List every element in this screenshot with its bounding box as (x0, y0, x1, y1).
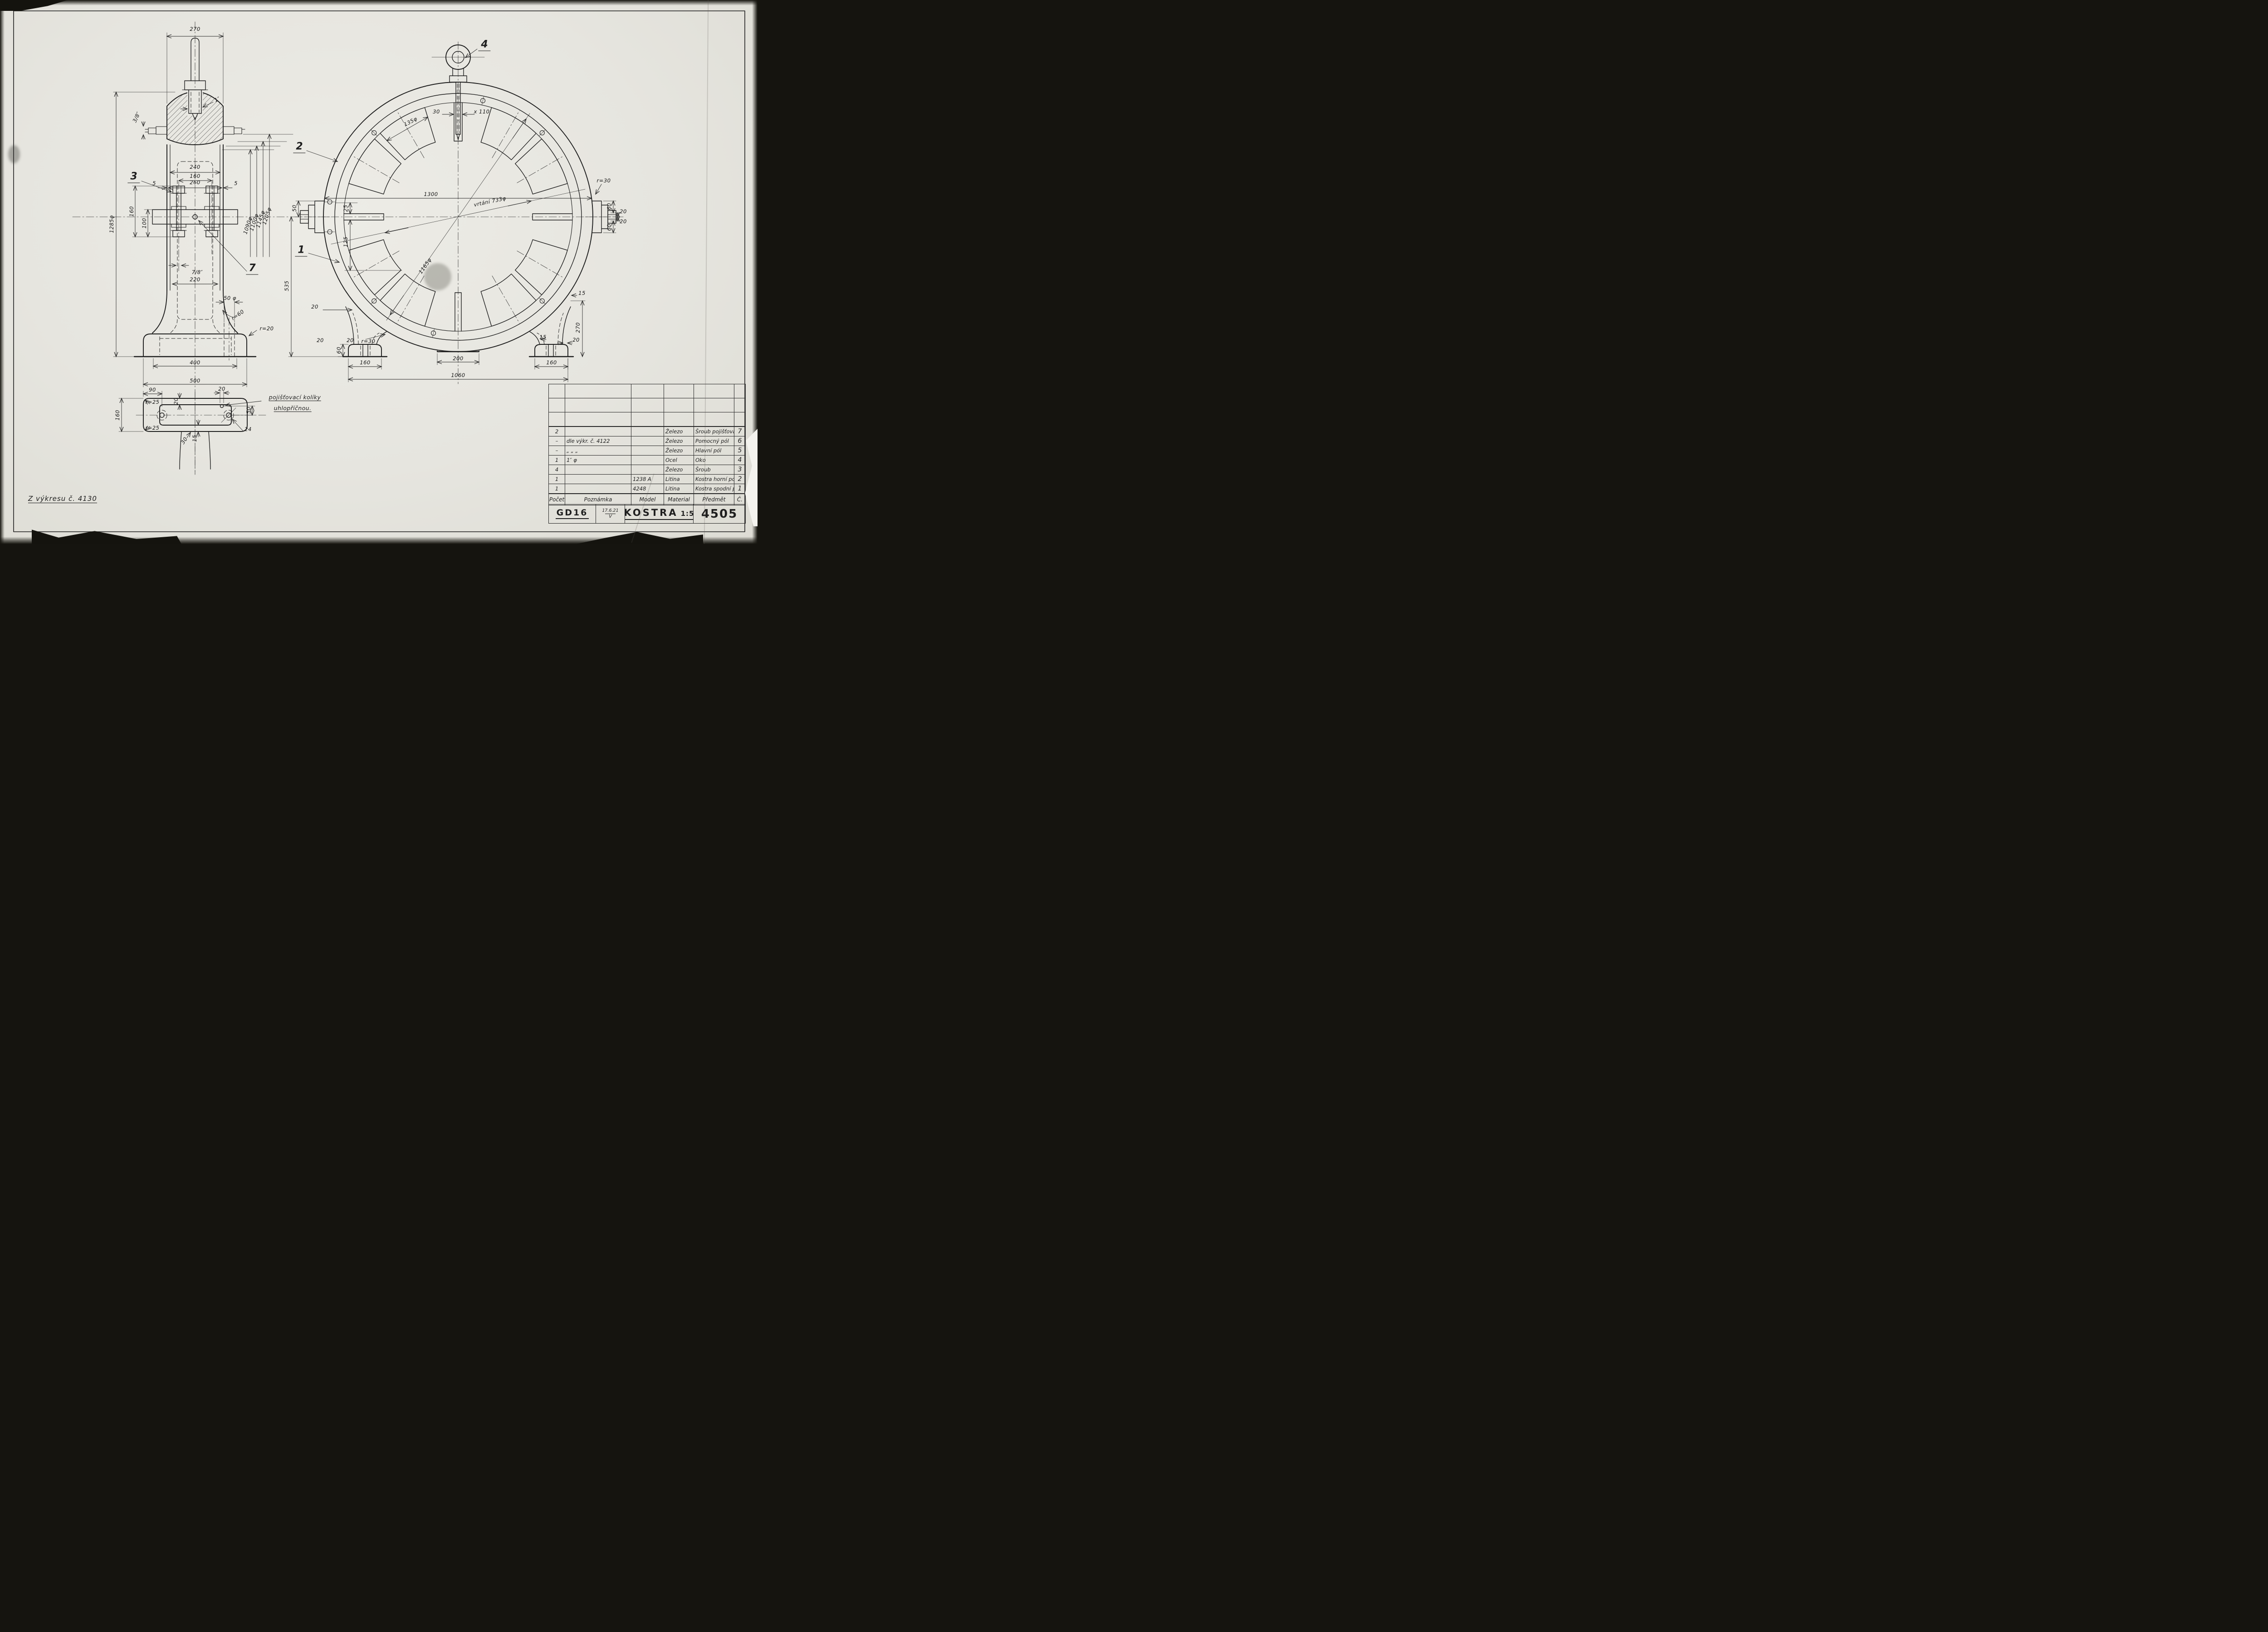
drawing-title: KOSTRA1:5 (625, 508, 694, 520)
dim-front-leftfoot-20c: 20 (347, 337, 354, 343)
lug-right (585, 201, 621, 233)
lug-left (295, 201, 332, 233)
dim-front-leftfoot-width: 160 (360, 359, 370, 366)
dim-front-rightlug-60b: 60 (606, 224, 612, 231)
side-view (113, 22, 293, 474)
table-row: 11″ φOcelOko4 (549, 456, 745, 465)
dim-front-leftfoot-60: 60 (336, 347, 342, 354)
dim-plan-pin-y: 50 (245, 407, 252, 414)
dim-front-lug-height: 50 (291, 205, 298, 212)
dim-side-overall-dia: 1285φ (108, 215, 115, 233)
dim-plan-pin-offset: 20 (218, 386, 225, 392)
dim-front-rightfoot-height: 270 (575, 322, 581, 333)
flange-bolt-left (171, 181, 186, 272)
flange-bolt-right (204, 181, 220, 254)
pin-note-line2: uhlopříčnou. (274, 405, 312, 412)
dim-front-rightlug-60a: 60 (606, 203, 612, 210)
dim-front-flat: 200 (453, 355, 463, 362)
drawing-sheet: 270 3/8″ 240 260 5 5 1″ 160 160 100 1285… (0, 0, 758, 544)
dim-front-rightlug-20b: 20 (620, 218, 627, 225)
dim-plan-hole-dia: 24 (244, 426, 252, 432)
dim-side-wall-right: 5 (234, 180, 238, 186)
dim-front-slot-length: x 110 (474, 108, 490, 115)
dim-plan-hole-offset: 90 (149, 387, 156, 393)
source-drawing-note: Z výkresu č. 4130 (28, 495, 97, 503)
dim-side-foot-r20: r=20 (260, 325, 274, 332)
dim-side-bolt-spacing: 160 (190, 173, 200, 179)
dim-plan-r25-bottom: r=25 (146, 425, 160, 431)
dim-front-leftfoot-r30: r=30 (362, 338, 376, 344)
dim-front-rightfoot-20: 20 (572, 337, 580, 343)
dim-plan-height: 160 (114, 410, 121, 420)
front-view (288, 42, 621, 384)
dim-side-column-width: 220 (190, 276, 200, 283)
dim-front-rightfoot-lip: 15 (539, 334, 547, 340)
dim-side-bolt-dia: 7/8″ (192, 269, 203, 275)
dim-side-foot-inner: 400 (190, 359, 200, 366)
dim-front-slot-width: 30 (433, 108, 440, 115)
date-cell: 17.6.21 V (596, 505, 625, 523)
dim-plan-wall: 20 (173, 397, 179, 405)
dim-front-outer-dia: 1300 (424, 191, 438, 197)
dim-plan-lip: 15 (191, 435, 198, 442)
table-row: –dle výkr. č. 4122ŽelezoPomocný pól6 (549, 436, 745, 446)
table-row: –„ „ „ŽelezoHlavní pól5 (549, 446, 745, 456)
dim-front-rightlug-20a: 20 (620, 208, 627, 215)
org-code: GD16 (556, 509, 589, 519)
plan-view-foot (119, 391, 266, 475)
callout-7: 7 (246, 263, 258, 275)
title-block: GD16 17.6.21 V KOSTRA1:5 4505 (548, 504, 746, 524)
callout-1: 1 (295, 245, 307, 257)
table-row: 2ŽelezoŠroub pojišťovací7 (549, 426, 745, 436)
dim-side-flange-height: 160 (128, 206, 135, 216)
callout-2: 2 (293, 141, 305, 153)
dim-front-lug-offset: 25 (342, 205, 349, 212)
dim-front-span: 1060 (451, 372, 465, 378)
dim-side-window-outer: 260 (190, 179, 200, 186)
callout-4: 4 (478, 39, 490, 51)
dim-front-rightfoot-rib: 15 (578, 290, 586, 296)
scan-smudge (424, 263, 451, 290)
dim-front-leftfoot-20b: 20 (317, 337, 324, 343)
dim-side-wall-left: 5 (152, 180, 156, 186)
pin-note-line1: pojišťovací kolíky (269, 394, 321, 401)
table-row: 11238 ALitinaKostra horní pol.2 (549, 475, 745, 484)
dim-front-pole-offset: 125 (342, 236, 349, 247)
sign-off-mark: V (605, 514, 616, 519)
dim-front-half-height: 535 (283, 280, 290, 291)
drawing-scale: 1:5 (681, 510, 694, 518)
dim-front-rightlug-r30: r=30 (597, 177, 611, 184)
parts-table: 2ŽelezoŠroub pojišťovací7 –dle výkr. č. … (548, 384, 746, 505)
table-row: 4ŽelezoŠroub3 (549, 465, 745, 475)
dim-plan-r25-top: r=25 (146, 399, 160, 405)
dim-front-rightfoot-width: 160 (546, 359, 557, 366)
drawing-number: 4505 (701, 507, 738, 521)
dim-side-width-top: 270 (190, 26, 200, 32)
edge-scribble (8, 145, 20, 163)
dim-side-hole-50: 50 φ (224, 295, 236, 301)
dim-side-window-inner: 240 (190, 164, 200, 170)
callout-3: 3 (127, 171, 140, 183)
dim-side-foot-width: 500 (190, 377, 200, 384)
dim-front-leftfoot-20a: 20 (311, 304, 318, 310)
dim-side-flange-spacing: 100 (141, 218, 147, 228)
